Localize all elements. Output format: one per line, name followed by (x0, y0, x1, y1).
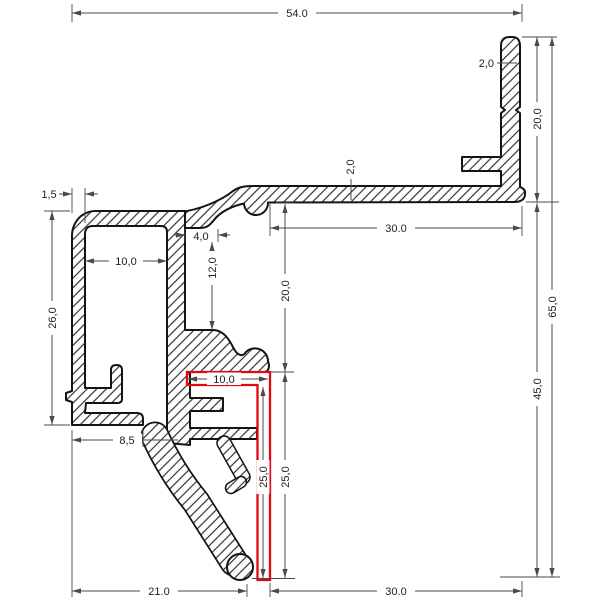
dim-lower-height-label: 45,0 (532, 378, 544, 399)
dim-top-width-label: 54.0 (286, 8, 307, 20)
top-flange-and-bar (180, 37, 525, 228)
technical-drawing-canvas: 54.0 30.0 2,0 20,0 45,0 65,0 (0, 0, 600, 600)
dim-total-height-label: 65,0 (547, 296, 559, 317)
dim-bottom-right-label: 30.0 (385, 586, 406, 598)
dim-red-width-label: 10,0 (213, 374, 234, 386)
dim-foot-width-label: 8,5 (119, 435, 134, 447)
dim-flange-top-label: 30.0 (385, 223, 406, 235)
dim-box-inner-width: 10,0 (85, 254, 167, 268)
dim-bottom-right: 30.0 (270, 581, 522, 598)
dim-bottom-left-label: 21.0 (148, 586, 169, 598)
diagonal-stub (224, 443, 243, 488)
left-box-and-column (66, 211, 269, 445)
dim-notch-depth: 12,0 (206, 242, 220, 330)
dim-red-depth-outer-label: 25,0 (280, 466, 292, 487)
dim-box-height-label: 26,0 (47, 307, 59, 328)
dim-bar-height: 20,0 (522, 37, 559, 202)
dim-notch-depth-label: 12,0 (207, 257, 219, 278)
dim-mid-height-label: 20,0 (280, 280, 292, 301)
leg-end-blob (227, 554, 253, 580)
dim-top-width: 54.0 (72, 4, 522, 22)
dim-lower-height: 45,0 (531, 203, 545, 577)
dim-notch-width-label: 4,0 (193, 231, 208, 243)
dim-flange-thickness-label: 2,0 (345, 159, 357, 174)
dim-bar-height-label: 20,0 (532, 108, 544, 129)
dim-wall-thickness-label: 1,5 (41, 189, 56, 201)
dim-bar-thickness-label: 2,0 (479, 58, 494, 70)
dim-red-depth-inner-label: 25,0 (258, 466, 270, 487)
profile-cross-section (66, 37, 525, 580)
dim-box-inner-width-label: 10,0 (115, 256, 136, 268)
dim-flange-top: 30.0 (270, 204, 522, 236)
profile-drawing: 54.0 30.0 2,0 20,0 45,0 65,0 (0, 0, 600, 600)
